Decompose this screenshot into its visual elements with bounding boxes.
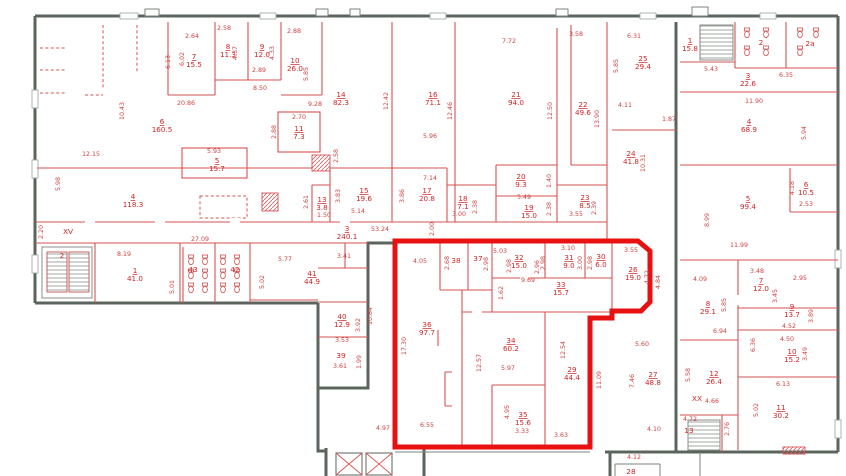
dimension-label: 4.72 xyxy=(683,416,697,423)
room-area-label: 20.8 xyxy=(419,194,435,203)
dimension-label: 9.69 xyxy=(521,277,535,284)
room-area-label: 15.5 xyxy=(186,60,202,69)
dimension-label: 2.64 xyxy=(185,33,199,40)
dimension-label: 2.89 xyxy=(252,67,266,74)
dimension-label: 4.18 xyxy=(789,181,796,195)
room-area-label: 94.0 xyxy=(508,98,524,107)
dimension-label: 3.89 xyxy=(808,309,815,323)
room-area-label: 15.2 xyxy=(784,355,800,364)
dimension-label: 5.85 xyxy=(721,298,728,312)
dimension-label: 4.84 xyxy=(655,275,662,289)
room-mark-label: 38 xyxy=(451,256,461,265)
room-mark-label: 2 xyxy=(60,251,65,260)
dimension-label: 4.09 xyxy=(693,276,707,283)
dimension-label: 4.37 xyxy=(232,46,239,60)
dimension-label: 6.55 xyxy=(420,422,434,429)
dimension-label: 6.02 xyxy=(179,52,186,66)
dimension-label: 7.72 xyxy=(502,38,516,45)
room-area-label: 97.7 xyxy=(419,328,435,337)
dimension-label: 6.31 xyxy=(627,33,641,40)
dimension-label: 1.87 xyxy=(662,116,676,123)
dimension-label: 4.72 xyxy=(644,270,651,284)
dimension-label: 5.85 xyxy=(303,67,310,81)
dimension-label: 4.10 xyxy=(647,426,661,433)
dimension-label: 8.19 xyxy=(117,251,131,258)
dimension-label: 2.38 xyxy=(472,200,479,214)
room-area-label: 22.6 xyxy=(740,79,756,88)
dimension-label: 2.38 xyxy=(546,202,553,216)
room-area-label: 12.9 xyxy=(334,320,350,329)
room-area-label: 15.0 xyxy=(521,211,537,220)
room-mark-label: XX xyxy=(692,394,702,403)
floor-plan: 715.5811.3912.01026.0117.31482.36160.541… xyxy=(0,0,846,476)
room-mark-label: 39 xyxy=(336,351,346,360)
room-area-label: 12.0 xyxy=(254,50,270,59)
dimension-label: 5.60 xyxy=(635,341,649,348)
dimension-label: 5.85 xyxy=(613,59,620,73)
room-area-label: 99.4 xyxy=(740,202,756,211)
room-area-label: 68.9 xyxy=(741,125,757,134)
room-area-label: 19.0 xyxy=(625,273,641,282)
dimension-label: 3.83 xyxy=(335,189,342,203)
dimension-label: 5.58 xyxy=(685,368,692,382)
dimension-label: 3.58 xyxy=(569,31,583,38)
room-area-label: 118.3 xyxy=(123,200,144,209)
room-area-label: 12.0 xyxy=(753,284,769,293)
room-area-label: 160.5 xyxy=(152,125,173,134)
dimension-label: 2.20 xyxy=(38,225,45,239)
dimension-label: 2.53 xyxy=(799,201,813,208)
dimension-label: 4.33 xyxy=(269,46,276,60)
dimension-label: 5.43 xyxy=(704,66,718,73)
room-area-label: 15.8 xyxy=(682,44,698,53)
room-area-label: 8.5 xyxy=(579,201,590,210)
room-area-label: 7.1 xyxy=(457,202,468,211)
dimension-label: 4.50 xyxy=(780,336,794,343)
dimension-label: 1.50 xyxy=(317,212,331,219)
dimension-label: 3.00 xyxy=(577,256,584,270)
dimension-label: 13.90 xyxy=(594,110,601,128)
dimension-label: 3.86 xyxy=(399,189,406,203)
dimension-label: 4.52 xyxy=(782,323,796,330)
dimension-label: 12.46 xyxy=(447,102,454,120)
dimension-label: 1.40 xyxy=(546,174,553,188)
dimension-label: 11.99 xyxy=(730,242,748,249)
dimension-label: 53.24 xyxy=(371,226,389,233)
room-area-label: 13.7 xyxy=(784,310,800,319)
room-area-label: 30.2 xyxy=(773,411,789,420)
dimension-label: 5.97 xyxy=(501,365,515,372)
dimension-label: 2.58 xyxy=(217,25,231,32)
dimension-label: 6.13 xyxy=(165,55,172,69)
room-area-label: 19.6 xyxy=(356,194,372,203)
dimension-label: 4.95 xyxy=(504,405,511,419)
dimension-label: 2.58 xyxy=(333,149,340,163)
dimension-label: 9.28 xyxy=(308,101,322,108)
outer-walls xyxy=(35,16,838,476)
elevator-shafts xyxy=(336,453,392,475)
dimension-label: 12.57 xyxy=(476,354,483,372)
dimension-label: 8.50 xyxy=(253,85,267,92)
dimension-label: 10.43 xyxy=(119,102,126,120)
dimension-label: 2.98 xyxy=(540,256,547,270)
dimension-label: 2.39 xyxy=(591,201,598,215)
room-mark-label: XV xyxy=(63,227,73,236)
dimension-label: 3.00 xyxy=(452,211,466,218)
dimension-label: 12.42 xyxy=(383,92,390,110)
room-area-label: 48.8 xyxy=(645,378,661,387)
room-mark-label: 2 xyxy=(759,38,764,47)
dimension-label: 27.09 xyxy=(191,236,209,243)
dimension-label: 3.53 xyxy=(335,337,349,344)
dimension-label: 3.41 xyxy=(337,253,351,260)
room-mark-label: 28 xyxy=(626,467,636,476)
room-area-label: 71.1 xyxy=(425,98,441,107)
dimension-label: 11.90 xyxy=(745,98,763,105)
room-area-label: 10.5 xyxy=(798,188,814,197)
room-area-label: 82.3 xyxy=(333,98,349,107)
dimension-label: 5.94 xyxy=(801,126,808,140)
dimension-label: 3.55 xyxy=(624,247,638,254)
dimension-label: 3.48 xyxy=(750,268,764,275)
room-area-label: 41.8 xyxy=(623,157,639,166)
partition-walls xyxy=(35,22,838,452)
dimension-label: 3.10 xyxy=(561,245,575,252)
dimension-label: 6.36 xyxy=(750,338,757,352)
dimension-label: 2.70 xyxy=(292,114,306,121)
room-labels-layer: 715.5811.3912.01026.0117.31482.36160.541… xyxy=(123,36,814,427)
dimension-label: 5.49 xyxy=(517,194,531,201)
room-area-label: 49.6 xyxy=(575,108,591,117)
dimension-label: 4.66 xyxy=(705,398,719,405)
dimension-label: 2.88 xyxy=(271,125,278,139)
room-area-label: 240.1 xyxy=(337,232,358,241)
room-area-label: 26.0 xyxy=(287,64,303,73)
dimension-label: 2.98 xyxy=(506,259,513,273)
room-area-label: 44.9 xyxy=(304,277,320,286)
dimension-label: 3.92 xyxy=(355,318,362,332)
room-mark-label: 13 xyxy=(684,426,694,435)
room-mark-label: 37 xyxy=(473,254,483,263)
dimension-label: 2.76 xyxy=(724,422,731,436)
dimension-label: 5.01 xyxy=(169,280,176,294)
dimension-label: 2.61 xyxy=(303,195,310,209)
room-mark-label: 2a xyxy=(805,39,814,48)
dimension-label: 11.09 xyxy=(596,371,603,389)
room-mark-label: 42 xyxy=(230,265,239,274)
dimension-label: 6.13 xyxy=(776,381,790,388)
dimension-label: 2.98 xyxy=(483,257,490,271)
dimension-label: 4.12 xyxy=(627,454,641,461)
dimension-label: 5.96 xyxy=(423,133,437,140)
dimension-label: 3.61 xyxy=(333,363,347,370)
room-area-label: 15.7 xyxy=(209,164,225,173)
dimension-label: 5.03 xyxy=(493,248,507,255)
dimension-label: 2.88 xyxy=(287,28,301,35)
room-area-label: 60.2 xyxy=(503,344,519,353)
dimension-label: 5.77 xyxy=(278,256,292,263)
dimension-label: 10.31 xyxy=(640,154,647,172)
room-mark-label: 43 xyxy=(188,265,198,274)
dimension-label: 2.95 xyxy=(793,275,807,282)
dimension-label: 3.45 xyxy=(772,289,779,303)
dimension-label: 5.98 xyxy=(55,177,62,191)
room-area-label: 15.7 xyxy=(553,288,569,297)
room-area-label: 9.3 xyxy=(515,180,526,189)
dimension-label: 4.97 xyxy=(376,425,390,432)
room-area-label: 6.0 xyxy=(595,260,607,269)
dimension-label: 5.14 xyxy=(351,208,365,215)
dimension-label: 5.02 xyxy=(259,275,266,289)
room-area-label: 29.4 xyxy=(635,62,651,71)
dimension-label: 20.86 xyxy=(177,100,195,107)
dimension-label: 2.68 xyxy=(444,256,451,270)
dimension-label: 3.63 xyxy=(554,432,568,439)
dimension-label: 5.02 xyxy=(753,403,760,417)
dimension-label: 2.00 xyxy=(429,222,436,236)
dimension-label: 7.14 xyxy=(423,175,437,182)
room-area-label: 7.3 xyxy=(293,132,304,141)
dimension-label: 12.54 xyxy=(560,341,567,359)
dimension-label: 1.99 xyxy=(356,355,363,369)
room-area-label: 26.4 xyxy=(706,377,722,386)
outer-walls-thin xyxy=(395,452,700,476)
dimension-label: 8.99 xyxy=(704,213,711,227)
dimension-label: 3.49 xyxy=(802,347,809,361)
dimension-label: 2.98 xyxy=(587,256,594,270)
floor-plan-canvas: 715.5811.3912.01026.0117.31482.36160.541… xyxy=(0,0,846,476)
dimension-label: 3.33 xyxy=(515,428,529,435)
dimension-label: 12.15 xyxy=(82,151,100,158)
dimension-label: 5.93 xyxy=(207,148,221,155)
dimension-label: 1.62 xyxy=(498,286,505,300)
window-marks xyxy=(32,13,841,438)
room-area-label: 44.4 xyxy=(564,373,580,382)
dimension-label: 3.55 xyxy=(569,211,583,218)
dimension-label: 4.11 xyxy=(618,102,632,109)
room-area-label: 3.8 xyxy=(316,203,328,212)
room-area-label: 41.0 xyxy=(127,274,143,283)
dimension-label: 17.30 xyxy=(401,337,408,355)
dimension-label: 4.05 xyxy=(413,258,427,265)
room-area-label: 9.0 xyxy=(563,261,575,270)
dimension-label: 10.84 xyxy=(367,307,374,325)
dashed-walls xyxy=(40,25,247,218)
room-area-label: 15.0 xyxy=(511,261,527,270)
dimension-label: 12.50 xyxy=(547,102,554,120)
room-area-label: 29.1 xyxy=(700,307,716,316)
dimension-label: 6.94 xyxy=(713,328,727,335)
room-area-label: 15.6 xyxy=(515,418,531,427)
dimension-label: 7.46 xyxy=(629,374,636,388)
dimension-label: 6.35 xyxy=(779,72,793,79)
